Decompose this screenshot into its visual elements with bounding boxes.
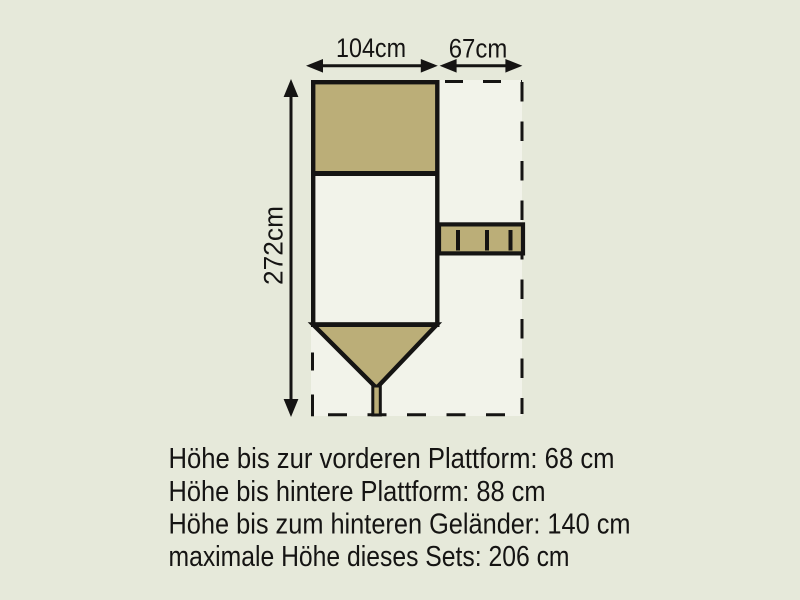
svg-text:272cm: 272cm <box>259 206 289 285</box>
svg-text:Höhe bis zum hinteren Geländer: Höhe bis zum hinteren Geländer: 140 cm <box>169 509 631 541</box>
svg-text:Höhe bis hintere Plattform: 88: Höhe bis hintere Plattform: 88 cm <box>169 476 546 508</box>
svg-text:Höhe bis zur vorderen Plattfor: Höhe bis zur vorderen Plattform: 68 cm <box>169 443 615 475</box>
svg-text:maximale Höhe dieses Sets: 206: maximale Höhe dieses Sets: 206 cm <box>169 541 570 573</box>
svg-text:67cm: 67cm <box>449 34 508 64</box>
svg-text:104cm: 104cm <box>336 33 406 63</box>
